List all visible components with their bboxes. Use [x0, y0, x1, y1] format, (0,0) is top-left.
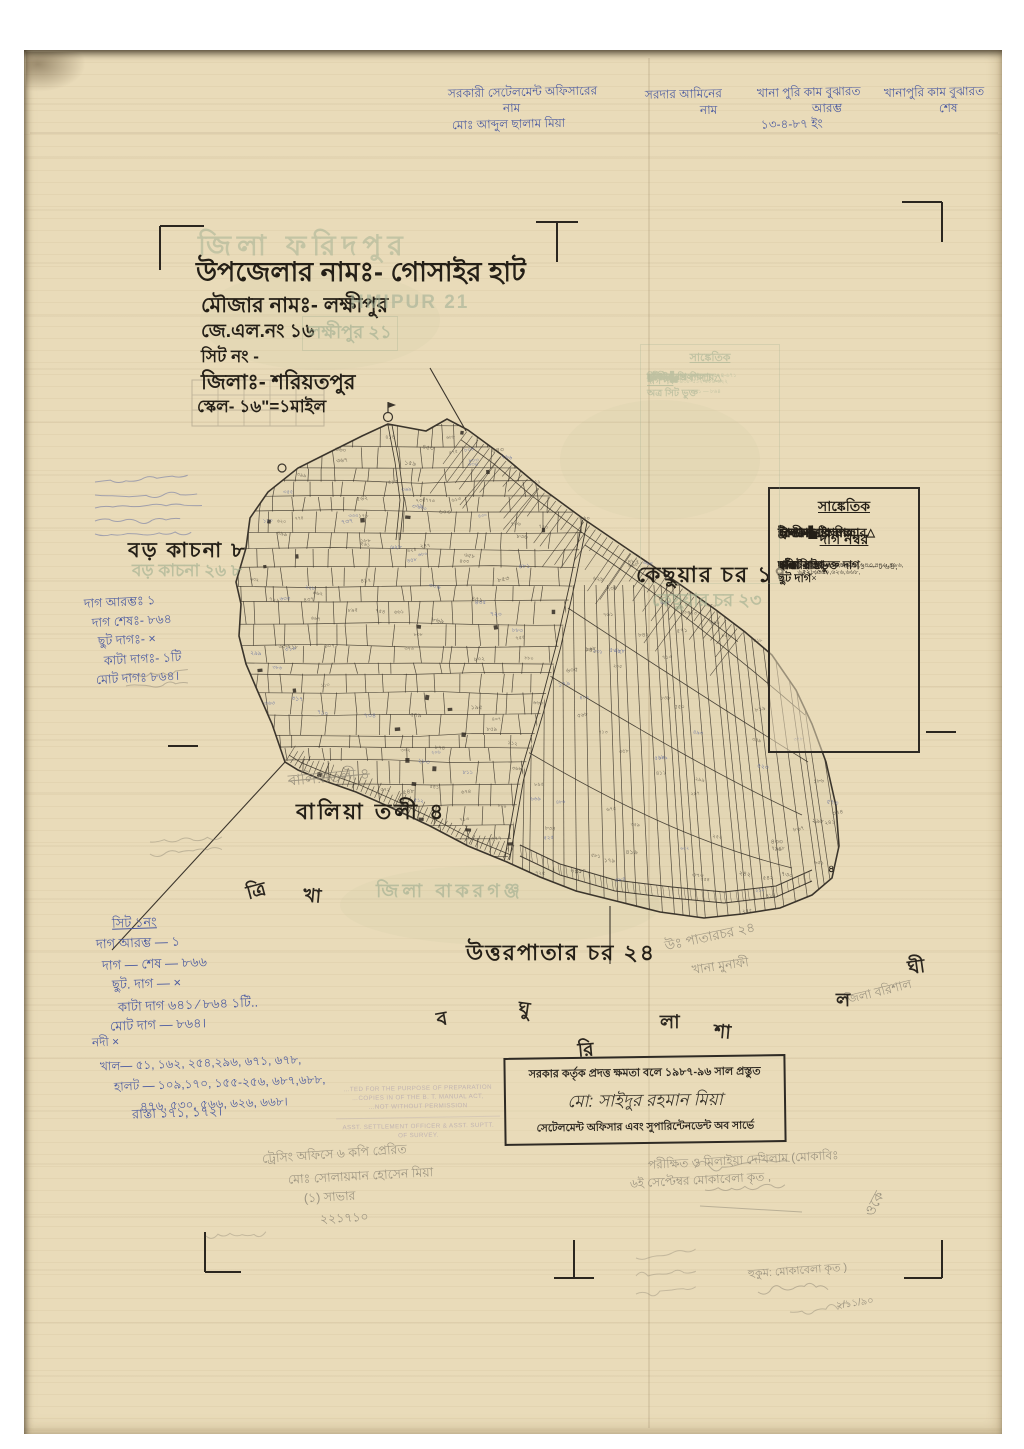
- scanned-cadastral-map-page: ৫৫৪৮০২৭২০৫৪৩৩৬৯৪৮১৩৬৪১৭৯৫৮১৮৮৩৩৪৯৬৮৮১৯৫৬…: [0, 0, 1024, 1449]
- paper-edge-shadow: [24, 50, 1002, 1434]
- map-sheet-paper: [24, 50, 1002, 1434]
- paper-stain: [26, 52, 86, 92]
